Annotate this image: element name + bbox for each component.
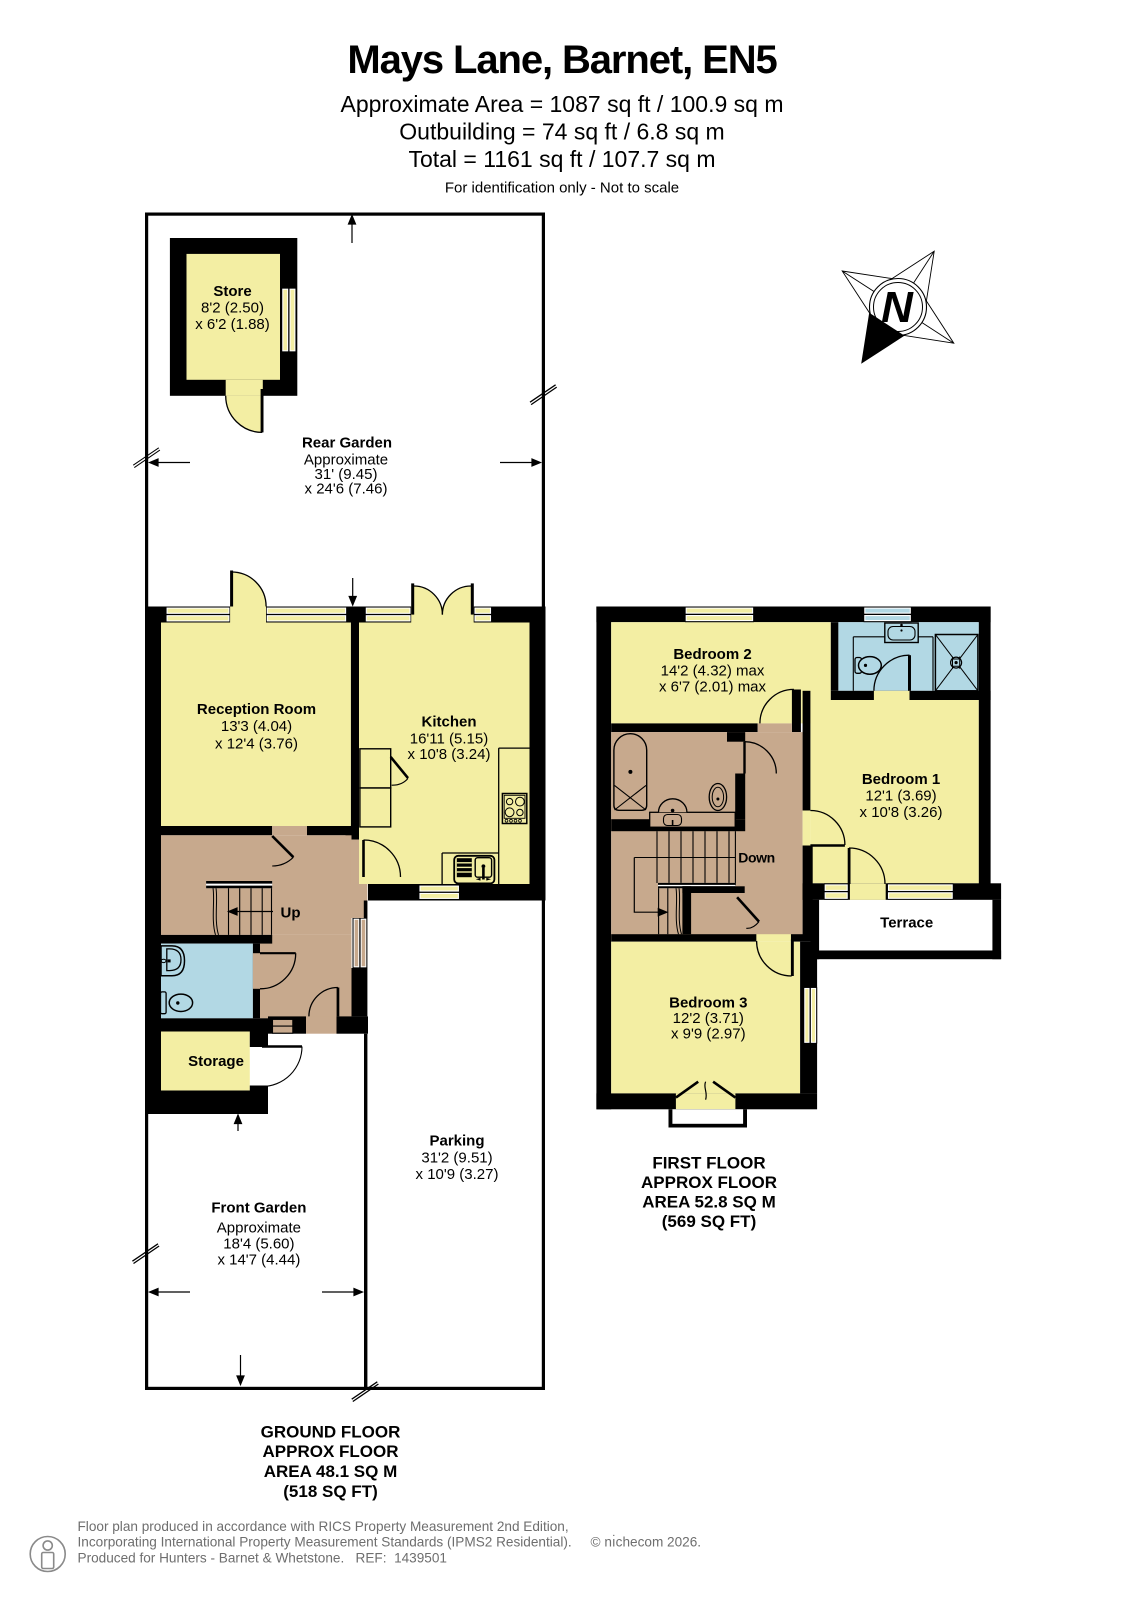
svg-text:8'2 (2.50): 8'2 (2.50) [201,299,264,316]
svg-text:31'2 (9.51): 31'2 (9.51) [421,1149,492,1166]
svg-text:(569 SQ FT): (569 SQ FT) [662,1212,756,1231]
svg-text:Bedroom 2: Bedroom 2 [673,646,751,663]
svg-text:13'3 (4.04): 13'3 (4.04) [221,718,292,735]
svg-text:x 10'9 (3.27): x 10'9 (3.27) [416,1166,499,1183]
svg-text:Parking: Parking [429,1132,484,1149]
svg-text:x 12'4 (3.76): x 12'4 (3.76) [215,735,298,752]
svg-text:APPROX FLOOR: APPROX FLOOR [262,1442,398,1461]
svg-text:Outbuilding = 74 sq ft / 6.8 s: Outbuilding = 74 sq ft / 6.8 sq m [399,119,724,145]
svg-text:Down: Down [738,850,775,866]
svg-text:x 14'7 (4.44): x 14'7 (4.44) [217,1251,300,1268]
svg-text:Mays Lane, Barnet, EN5: Mays Lane, Barnet, EN5 [347,38,777,82]
svg-text:APPROX FLOOR: APPROX FLOOR [641,1173,777,1192]
svg-text:GROUND FLOOR: GROUND FLOOR [261,1422,401,1441]
svg-text:Store: Store [213,283,251,300]
svg-text:Approximate Area = 1087 sq ft: Approximate Area = 1087 sq ft / 100.9 sq… [340,91,783,117]
svg-text:x 6'2 (1.88): x 6'2 (1.88) [195,316,270,333]
svg-text:12'2 (3.71): 12'2 (3.71) [673,1010,744,1027]
svg-text:Rear Garden: Rear Garden [302,434,392,451]
svg-text:x 24'6 (7.46): x 24'6 (7.46) [305,481,388,498]
svg-text:Terrace: Terrace [880,915,933,932]
svg-text:Incorporating International Pr: Incorporating International Property Mea… [78,1535,702,1550]
svg-text:Front Garden: Front Garden [211,1199,306,1216]
svg-text:AREA 48.1 SQ M: AREA 48.1 SQ M [264,1462,398,1481]
svg-text:Up: Up [281,905,301,922]
svg-text:14'2 (4.32) max: 14'2 (4.32) max [661,662,765,679]
svg-text:Approximate: Approximate [217,1220,301,1237]
svg-text:x 10'8 (3.24): x 10'8 (3.24) [408,746,491,763]
svg-text:Total = 1161 sq ft / 107.7 sq: Total = 1161 sq ft / 107.7 sq m [408,146,715,172]
svg-text:18'4 (5.60): 18'4 (5.60) [223,1235,294,1252]
svg-text:12'1 (3.69): 12'1 (3.69) [865,787,936,804]
svg-text:FIRST FLOOR: FIRST FLOOR [652,1154,765,1173]
svg-text:Produced for Hunters - Barnet: Produced for Hunters - Barnet & Whetston… [78,1551,448,1566]
svg-text:(518 SQ FT): (518 SQ FT) [283,1482,377,1501]
svg-text:N: N [881,283,914,332]
svg-text:x 10'8 (3.26): x 10'8 (3.26) [860,804,943,821]
svg-text:AREA 52.8 SQ M: AREA 52.8 SQ M [642,1193,776,1212]
svg-text:x 9'9 (2.97): x 9'9 (2.97) [671,1025,746,1042]
svg-text:x 6'7 (2.01) max: x 6'7 (2.01) max [659,679,767,696]
svg-text:Floor plan produced in accorda: Floor plan produced in accordance with R… [78,1519,569,1534]
svg-text:Storage: Storage [188,1053,244,1070]
svg-text:Bedroom 1: Bedroom 1 [862,771,940,788]
svg-text:Reception Room: Reception Room [197,701,316,718]
svg-text:For identification only - Not: For identification only - Not to scale [445,180,679,197]
svg-text:Kitchen: Kitchen [421,714,476,731]
